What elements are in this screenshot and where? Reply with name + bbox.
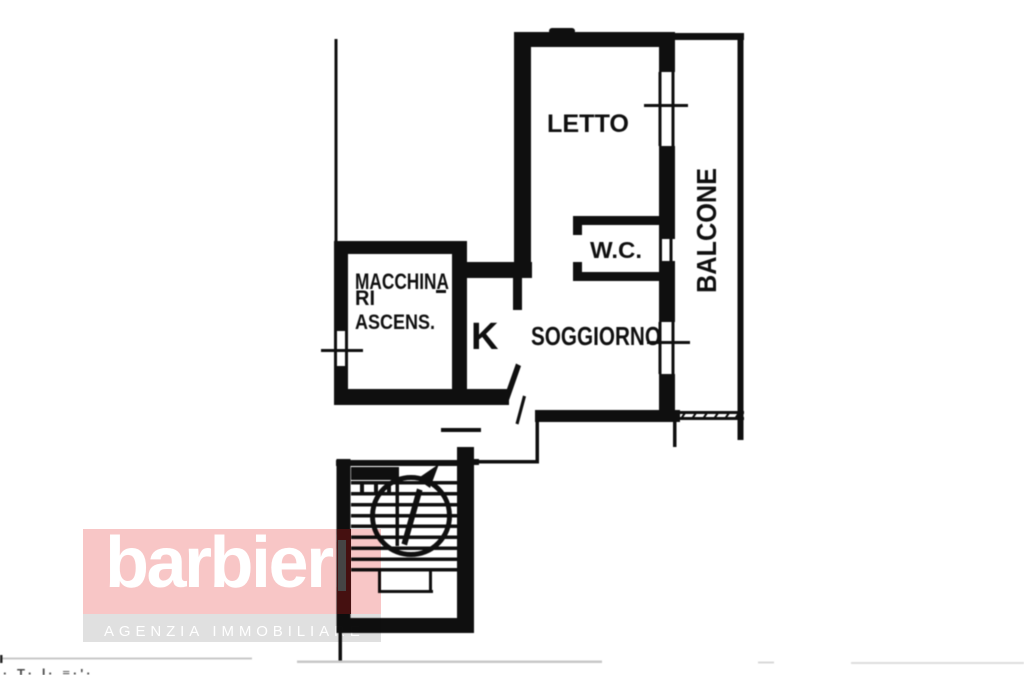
svg-text:ASCENS.: ASCENS. bbox=[355, 311, 435, 334]
svg-text:· T· l· ≡·'·: · T· l· ≡·'· bbox=[3, 666, 94, 675]
svg-text:BALCONE: BALCONE bbox=[691, 168, 722, 293]
svg-text:LETTO: LETTO bbox=[547, 110, 629, 138]
svg-text:SOGGIORNO: SOGGIORNO bbox=[531, 321, 661, 351]
svg-text:K: K bbox=[471, 316, 499, 358]
svg-text:RI: RI bbox=[355, 287, 375, 310]
svg-text:W.C.: W.C. bbox=[590, 237, 642, 263]
